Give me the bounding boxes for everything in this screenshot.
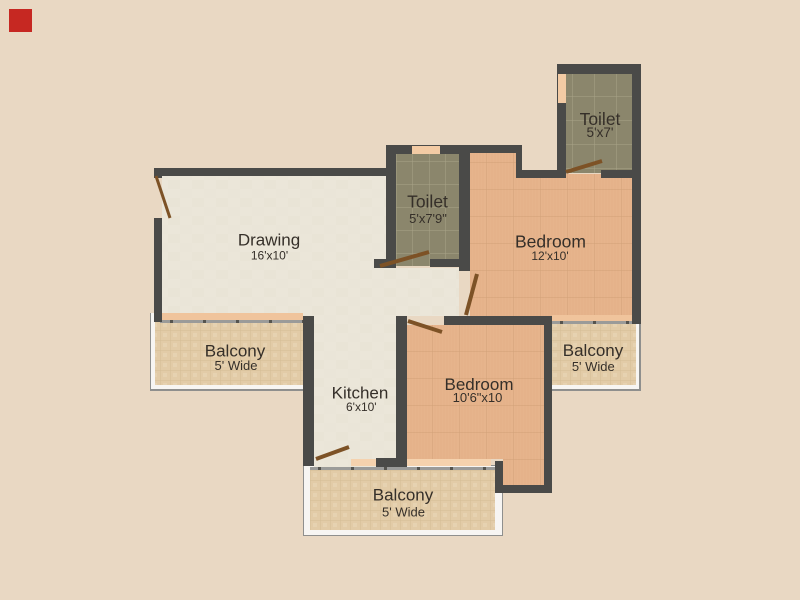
svg-text:Drawing: Drawing bbox=[238, 231, 300, 250]
svg-text:5'x7'9": 5'x7'9" bbox=[409, 211, 447, 226]
svg-text:12'x10': 12'x10' bbox=[531, 249, 568, 263]
svg-text:5' Wide: 5' Wide bbox=[572, 359, 615, 374]
svg-text:Toilet: Toilet bbox=[407, 192, 448, 212]
svg-text:10'6"x10: 10'6"x10 bbox=[453, 390, 503, 405]
svg-text:Balcony: Balcony bbox=[373, 485, 434, 504]
svg-text:5' Wide: 5' Wide bbox=[215, 358, 258, 373]
svg-text:6'x10': 6'x10' bbox=[346, 400, 377, 414]
svg-text:16'x10': 16'x10' bbox=[251, 249, 288, 263]
svg-text:Balcony: Balcony bbox=[563, 341, 624, 360]
svg-text:5'x7': 5'x7' bbox=[587, 125, 614, 140]
svg-text:5' Wide: 5' Wide bbox=[382, 505, 425, 520]
